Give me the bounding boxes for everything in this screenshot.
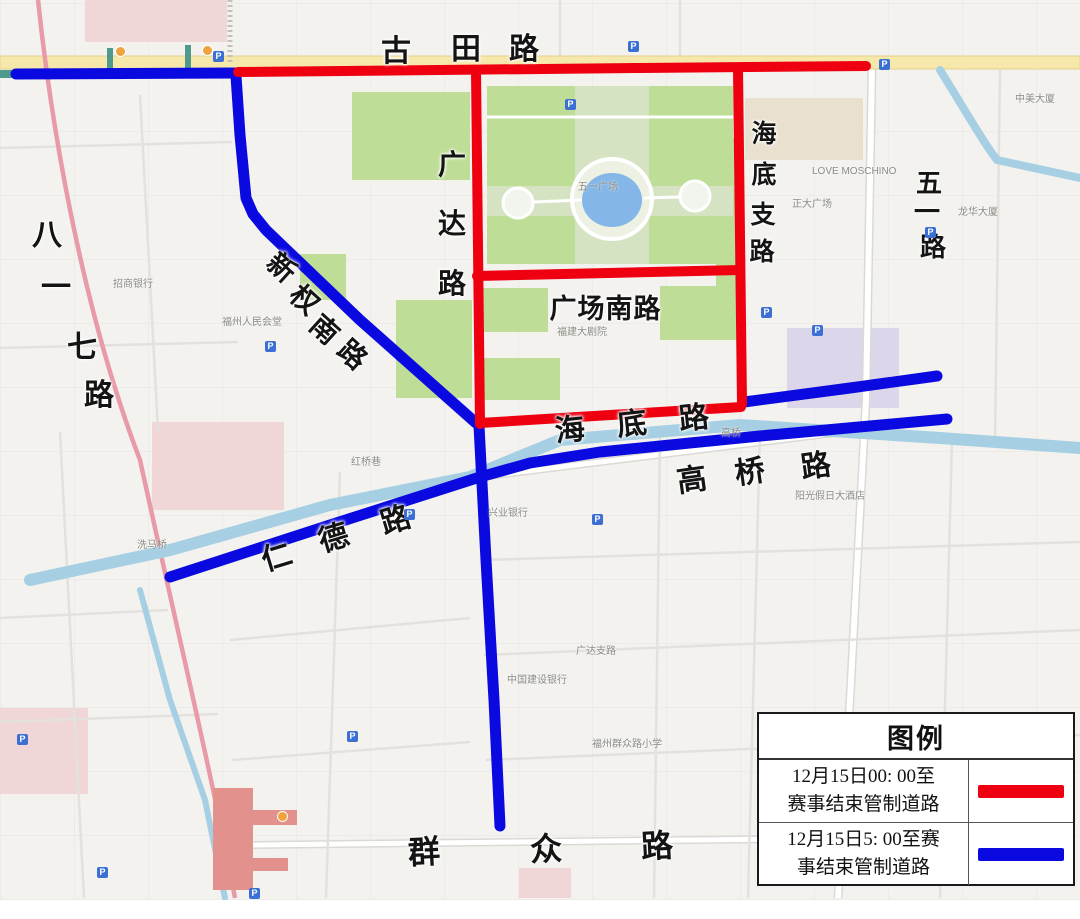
legend-red-line2: 赛事结束管制道路 — [787, 791, 939, 820]
parking-icon: P — [925, 227, 936, 238]
label-gaoqiao-road-char: 桥 — [733, 456, 767, 490]
poi-label: 中国建设银行 — [507, 676, 567, 686]
parking-icon: P — [213, 51, 224, 62]
label-bayiqi-road-char: 一 — [41, 273, 71, 303]
label-guangchang-south-road-char: 广 — [550, 296, 577, 323]
parking-icon: P — [565, 99, 576, 110]
poi-label: 正大广场 — [792, 200, 832, 210]
parking-icon: P — [17, 734, 28, 745]
poi-label: 洗马桥 — [137, 541, 167, 551]
parking-icon: P — [812, 325, 823, 336]
parking-icon: P — [265, 341, 276, 352]
label-bayiqi-road-char: 路 — [84, 381, 114, 411]
label-haidi-road-char: 海 — [554, 415, 587, 448]
route-center-south-blue — [479, 426, 500, 826]
route-gutian-road-red — [238, 66, 866, 72]
parking-icon: P — [761, 307, 772, 318]
parking-icon: P — [249, 888, 260, 899]
parking-icon: P — [347, 731, 358, 742]
label-bayiqi-road-char: 八 — [32, 221, 62, 251]
label-haidi-branch-road-char: 底 — [752, 163, 777, 188]
poi-label: 高桥 — [721, 429, 741, 439]
label-wuyi-road-char: 五 — [916, 170, 942, 196]
label-gutian-road-char: 古 — [381, 37, 411, 67]
poi-label: 福州群众路小学 — [592, 740, 662, 750]
route-guangda-road-red — [476, 71, 480, 424]
road-closure-map: 古田路八一七路新权南路广达路海底支路五一路广场南路海底路高桥路仁德路群众路 五一… — [0, 0, 1080, 919]
label-qunzhong-road-char: 路 — [640, 829, 674, 863]
metro-station-icon — [115, 46, 126, 57]
label-gutian-road-char: 田 — [451, 35, 481, 65]
parking-icon: P — [628, 41, 639, 52]
metro-station-icon — [277, 811, 288, 822]
label-haidi-branch-road-char: 支 — [751, 203, 776, 228]
route-haidi-east-blue — [744, 376, 937, 402]
parking-icon: P — [879, 59, 890, 70]
poi-label: 中美大厦 — [1015, 95, 1055, 105]
label-gaoqiao-road-char: 路 — [799, 450, 833, 484]
label-gaoqiao-road-char: 高 — [675, 464, 709, 498]
poi-label: LOVE MOSCHINO — [812, 167, 896, 177]
poi-label: 福州人民会堂 — [222, 318, 282, 328]
label-haidi-road-char: 路 — [678, 403, 711, 436]
label-qunzhong-road-char: 群 — [407, 835, 441, 869]
label-haidi-branch-road-char: 路 — [750, 240, 775, 265]
route-square-south-red — [477, 270, 740, 276]
legend-row-red: 12月15日00: 00至 赛事结束管制道路 — [759, 760, 1073, 823]
legend-red-swatch — [978, 785, 1064, 798]
legend-row-blue: 12月15日5: 00至赛 事结束管制道路 — [759, 823, 1073, 885]
poi-label: 五一广场 — [578, 183, 618, 193]
legend-box: 图例 12月15日00: 00至 赛事结束管制道路 12月15日5: 00至赛 … — [757, 712, 1075, 886]
label-gutian-road-char: 路 — [509, 35, 539, 65]
legend-blue-text: 12月15日5: 00至赛 事结束管制道路 — [759, 823, 969, 885]
route-gutian-west-blue — [16, 73, 234, 74]
route-haidi-branch-red — [738, 69, 742, 404]
legend-red-text: 12月15日00: 00至 赛事结束管制道路 — [759, 760, 969, 822]
poi-label: 龙华大厦 — [958, 208, 998, 218]
label-guangda-road-char: 达 — [438, 210, 466, 238]
label-guangchang-south-road-char: 南 — [606, 296, 633, 323]
legend-blue-line1: 12月15日5: 00至赛 — [787, 826, 940, 855]
label-haidi-branch-road-char: 海 — [752, 122, 777, 147]
poi-label: 福建大剧院 — [557, 328, 607, 338]
legend-blue-swatch — [978, 848, 1064, 861]
label-guangda-road-char: 路 — [438, 270, 466, 298]
legend-title: 图例 — [759, 714, 1073, 760]
legend-blue-line2: 事结束管制道路 — [797, 854, 930, 883]
metro-station-icon — [202, 45, 213, 56]
label-guangchang-south-road-char: 路 — [634, 296, 661, 323]
poi-label: 招商银行 — [113, 280, 153, 290]
poi-label: 广达支路 — [576, 647, 616, 657]
label-haidi-road-char: 底 — [616, 409, 649, 442]
label-wuyi-road-char: 一 — [914, 199, 940, 225]
label-guangda-road-char: 广 — [438, 151, 466, 179]
poi-label: 阳光假日大酒店 — [795, 492, 865, 502]
poi-label: 红桥巷 — [351, 458, 381, 468]
label-bayiqi-road-char: 七 — [67, 333, 97, 363]
legend-red-line1: 12月15日00: 00至 — [792, 763, 935, 792]
label-guangchang-south-road-char: 场 — [578, 296, 605, 323]
parking-icon: P — [97, 867, 108, 878]
parking-icon: P — [404, 509, 415, 520]
label-qunzhong-road-char: 众 — [529, 832, 563, 866]
poi-label: 兴业银行 — [488, 509, 528, 519]
parking-icon: P — [592, 514, 603, 525]
